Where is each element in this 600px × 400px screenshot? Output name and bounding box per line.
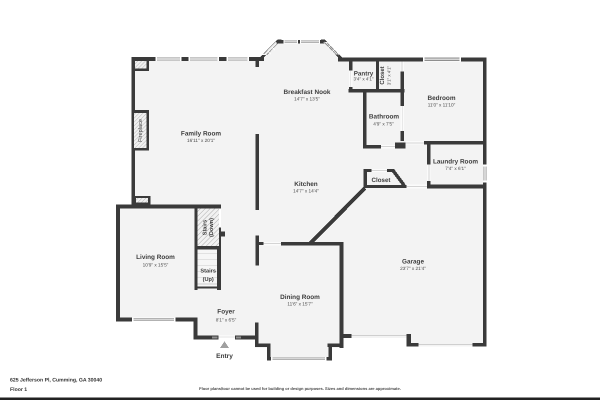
svg-text:14'7" x 13'5": 14'7" x 13'5" bbox=[294, 97, 320, 102]
svg-text:7'4" x 6'1": 7'4" x 6'1" bbox=[445, 166, 466, 171]
svg-text:Living Room: Living Room bbox=[136, 254, 175, 261]
svg-text:10'9" x 15'5": 10'9" x 15'5" bbox=[143, 263, 169, 268]
svg-text:Bedroom: Bedroom bbox=[427, 95, 455, 102]
svg-text:Laundry Room: Laundry Room bbox=[433, 159, 478, 166]
svg-text:Closet: Closet bbox=[379, 66, 386, 84]
svg-text:Fireplace: Fireplace bbox=[137, 119, 144, 142]
svg-text:Kitchen: Kitchen bbox=[294, 181, 318, 188]
svg-text:4'9" x 7'5": 4'9" x 7'5" bbox=[373, 122, 394, 127]
svg-text:Family Room: Family Room bbox=[181, 131, 221, 138]
svg-text:(Up): (Up) bbox=[203, 276, 214, 283]
svg-text:8'1" x 6'5": 8'1" x 6'5" bbox=[216, 318, 237, 323]
svg-text:16'11" x 20'1": 16'11" x 20'1" bbox=[187, 138, 215, 143]
svg-text:11'6" x 15'7": 11'6" x 15'7" bbox=[287, 302, 313, 307]
svg-text:Stairs: Stairs bbox=[200, 267, 216, 274]
svg-text:Stairs: Stairs bbox=[201, 220, 208, 236]
svg-text:23'7" x 21'4": 23'7" x 21'4" bbox=[400, 266, 426, 271]
svg-text:Floor plans/tour cannot be use: Floor plans/tour cannot be used for buil… bbox=[199, 386, 401, 391]
svg-text:Entry: Entry bbox=[216, 353, 233, 360]
svg-text:3'4" x 4'1": 3'4" x 4'1" bbox=[353, 77, 373, 82]
svg-text:(Down): (Down) bbox=[208, 218, 215, 237]
svg-text:3'1" x 4'1": 3'1" x 4'1" bbox=[387, 65, 392, 85]
svg-text:11'0" x 11'10": 11'0" x 11'10" bbox=[428, 103, 456, 108]
svg-text:Dining Room: Dining Room bbox=[280, 294, 320, 301]
svg-text:Floor 1: Floor 1 bbox=[10, 387, 27, 393]
svg-text:Closet: Closet bbox=[372, 177, 391, 184]
svg-text:Foyer: Foyer bbox=[217, 309, 235, 316]
svg-text:Garage: Garage bbox=[402, 259, 424, 266]
svg-text:14'7" x 14'4": 14'7" x 14'4" bbox=[293, 189, 319, 194]
svg-text:Bathroom: Bathroom bbox=[369, 113, 399, 120]
svg-text:625 Jefferson Pl, Cumming, GA: 625 Jefferson Pl, Cumming, GA 30040 bbox=[10, 378, 102, 384]
svg-text:Breakfast Nook: Breakfast Nook bbox=[284, 89, 331, 96]
